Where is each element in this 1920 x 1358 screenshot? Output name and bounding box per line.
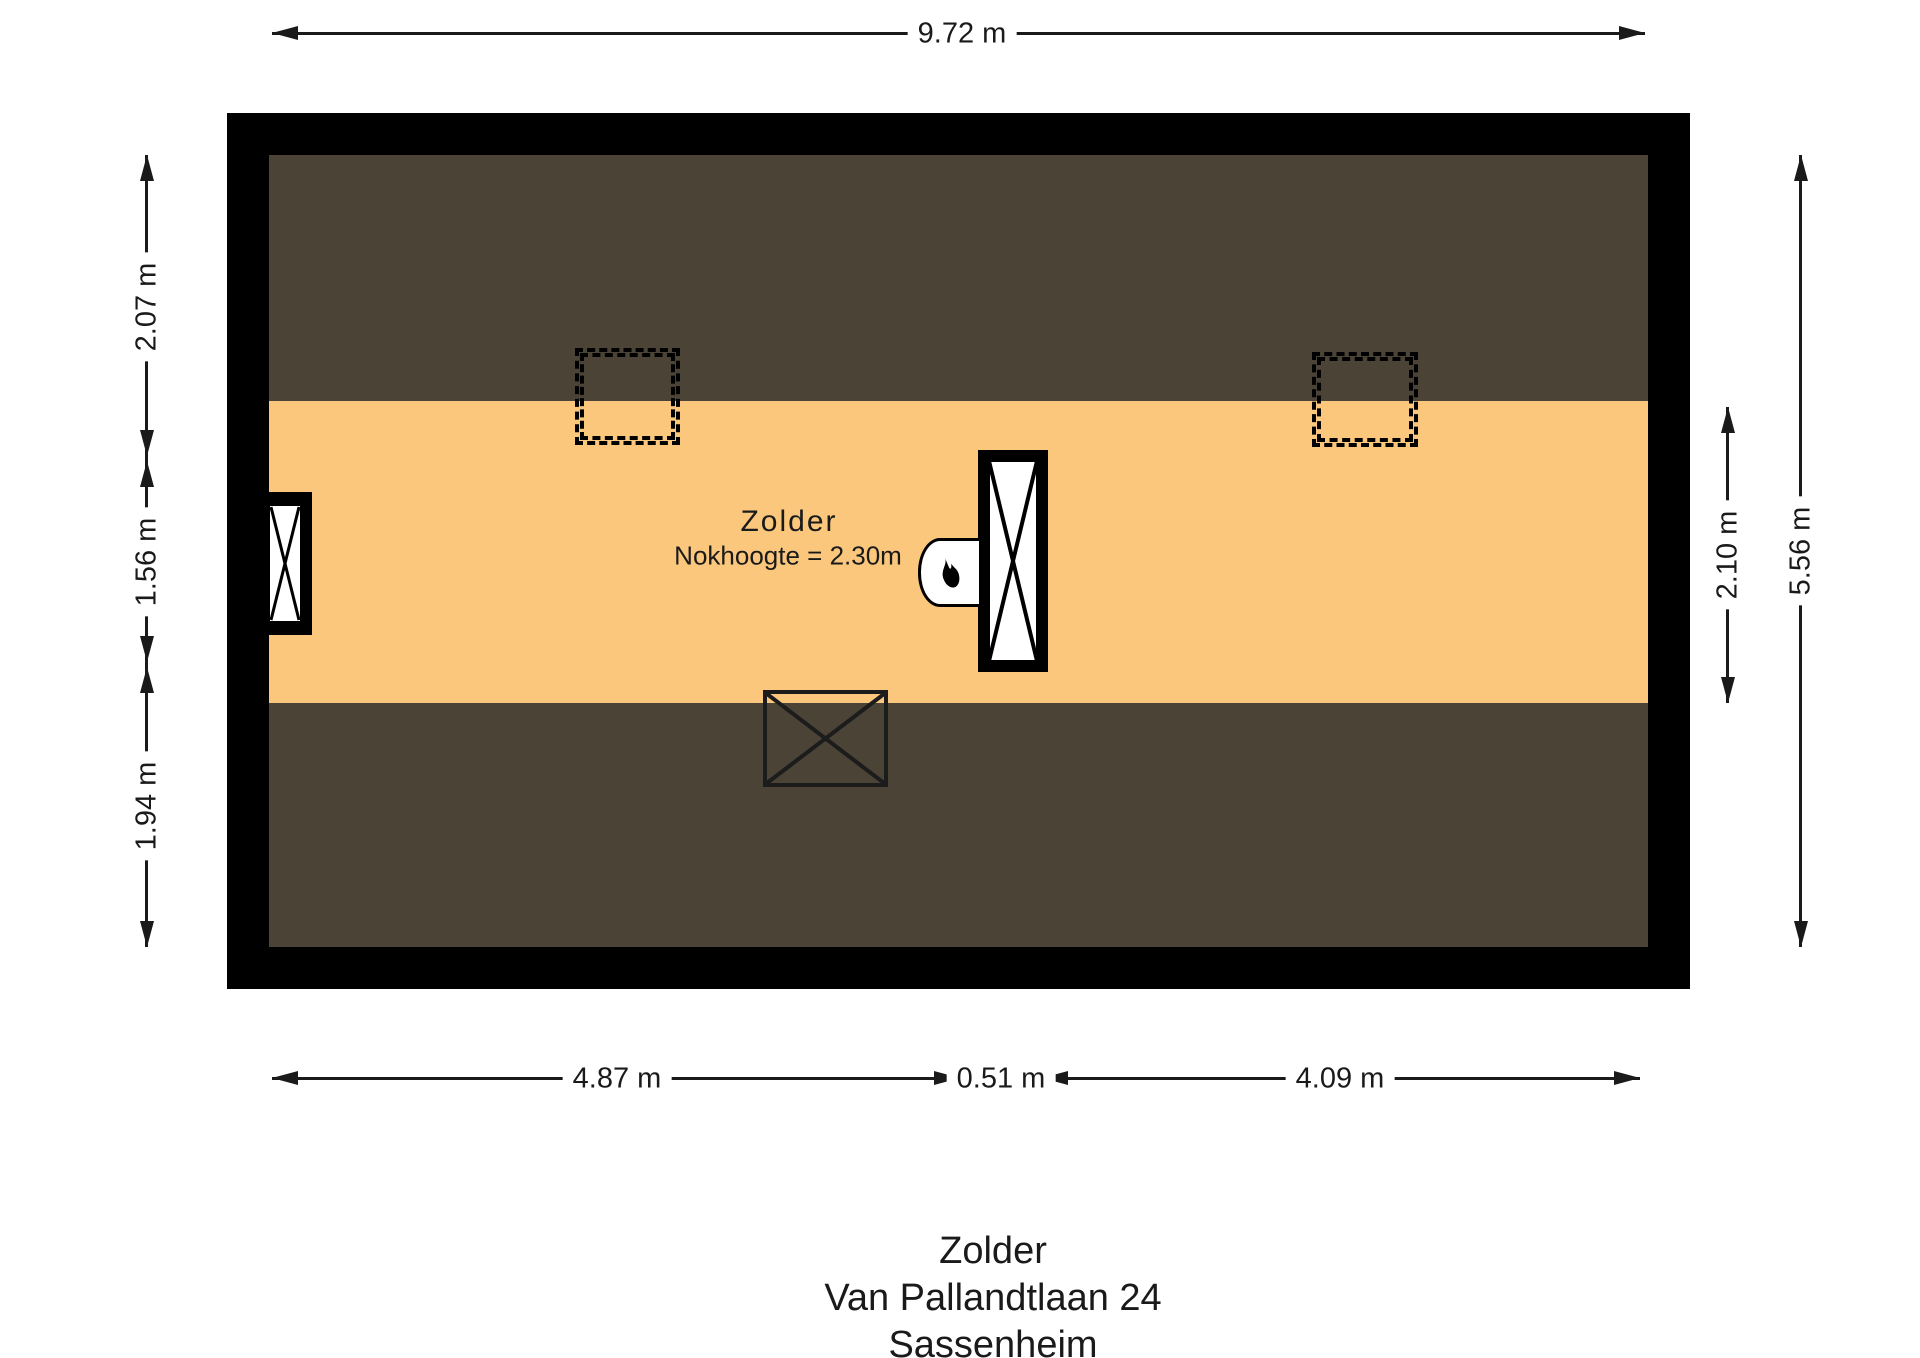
stair-opening — [763, 690, 888, 787]
arrowhead-up — [140, 461, 154, 487]
title-block: Zolder Van Pallandtlaan 24 Sassenheim — [824, 1228, 1161, 1358]
roof-window-left — [575, 348, 680, 445]
roof-window-left-inner — [580, 353, 675, 440]
sloped-roof-area-bottom — [269, 703, 1648, 947]
stair-opening-cross-icon — [767, 694, 884, 783]
dim-label-left-bottom: 1.94 m — [131, 752, 164, 861]
roof-window-right-inner — [1317, 357, 1413, 442]
title-street: Van Pallandtlaan 24 — [824, 1275, 1161, 1322]
chimney-shaft — [978, 450, 1048, 672]
dim-label-right-inner: 2.10 m — [1712, 501, 1745, 610]
dim-label-bottom-left: 4.87 m — [563, 1063, 672, 1096]
dim-label-top: 9.72 m — [908, 18, 1017, 51]
window-pane — [270, 506, 300, 621]
ridge-height-label: Nokhoogte = 2.30m — [674, 541, 902, 572]
roof-window-right — [1312, 352, 1418, 447]
arrowhead-up — [1721, 407, 1735, 433]
title-city: Sassenheim — [824, 1322, 1161, 1358]
arrowhead-down — [140, 636, 154, 662]
arrowhead-down — [140, 430, 154, 456]
dim-label-left-top: 2.07 m — [131, 253, 164, 362]
room-label: Zolder — [740, 505, 837, 539]
arrowhead-up — [1794, 155, 1808, 181]
boiler — [918, 538, 982, 607]
arrowhead-down — [140, 921, 154, 947]
arrowhead-right — [1619, 26, 1645, 40]
shaft-cross-icon — [987, 459, 1039, 663]
arrowhead-left — [272, 1071, 298, 1085]
arrowhead-down — [1721, 677, 1735, 703]
sloped-roof-area-top — [269, 155, 1648, 401]
chimney-core — [987, 459, 1039, 663]
arrowhead-up — [140, 155, 154, 181]
dim-label-bottom-right: 4.09 m — [1286, 1063, 1395, 1096]
floorplan-canvas: Zolder Nokhoogte = 2.30m 9.72 m 4.87 m 0… — [0, 0, 1920, 1358]
arrowhead-up — [140, 667, 154, 693]
flame-icon — [933, 555, 967, 591]
dim-label-right-overall: 5.56 m — [1785, 497, 1818, 606]
arrowhead-down — [1794, 921, 1808, 947]
arrowhead-right — [1614, 1071, 1640, 1085]
dim-label-bottom-middle: 0.51 m — [947, 1063, 1056, 1096]
arrowhead-left — [272, 26, 298, 40]
dim-label-left-middle: 1.56 m — [131, 508, 164, 617]
title-room: Zolder — [824, 1228, 1161, 1275]
window-cross-icon — [270, 506, 300, 621]
